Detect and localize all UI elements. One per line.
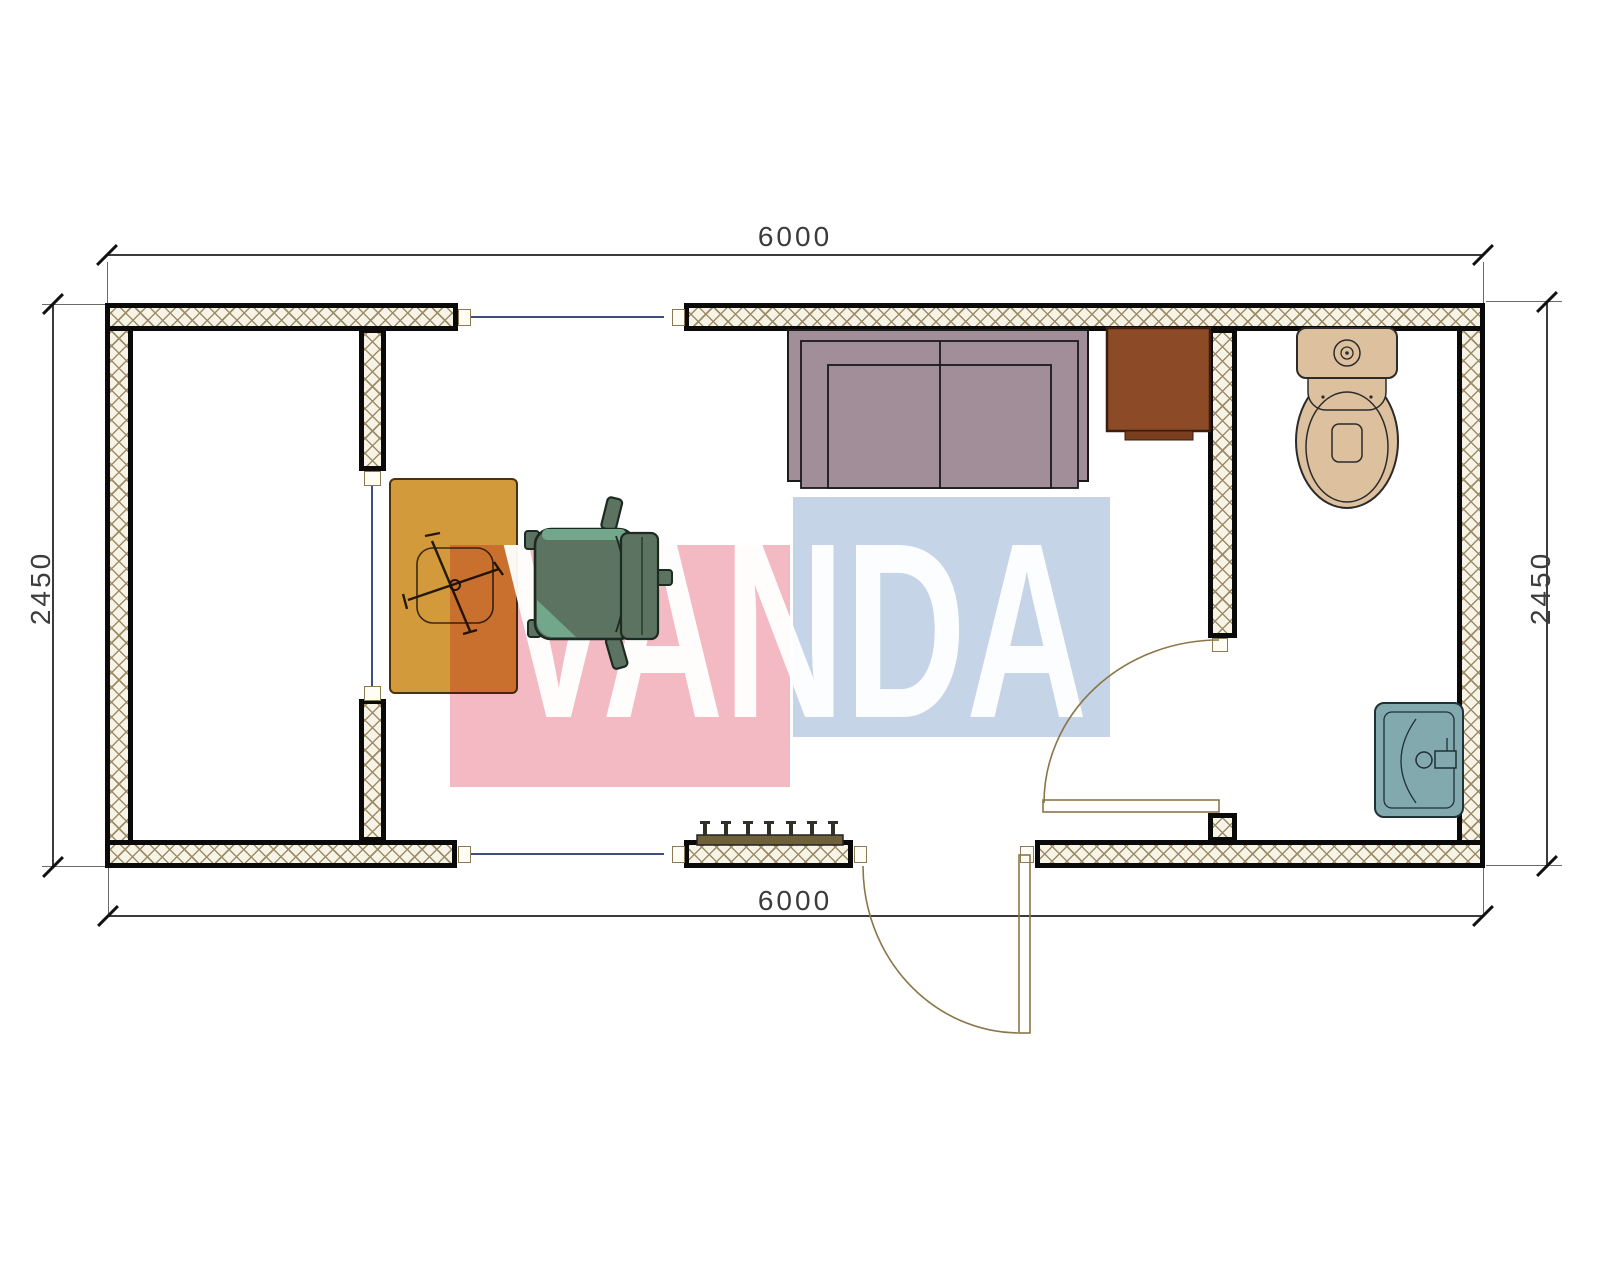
wall-opening-jamb (854, 846, 867, 863)
wall-partition-left-lower (359, 699, 386, 842)
wall-opening-jamb (364, 686, 381, 701)
wall-exterior-right (1457, 303, 1485, 868)
wall-exterior-bottom-right (1035, 840, 1485, 868)
wall-opening-jamb (458, 846, 471, 863)
wall-opening-jamb (672, 846, 685, 863)
extension-line (1483, 868, 1484, 916)
cabinet (1107, 328, 1210, 440)
floor-plan: 6000 6000 2450 2450 (0, 0, 1600, 1280)
wall-exterior-bottom-mid (684, 840, 853, 868)
extension-line (107, 262, 108, 303)
extension-line (1486, 865, 1562, 866)
wall-exterior-bottom-left (105, 840, 457, 868)
extension-line (1483, 262, 1484, 303)
entrance-door (863, 855, 1030, 1033)
extension-line (108, 868, 109, 916)
wall-opening-jamb (1212, 638, 1228, 652)
wall-partition-bathroom (1208, 328, 1237, 638)
watermark-pink-block (450, 545, 790, 787)
dim-label-bottom: 6000 (758, 885, 832, 917)
extension-line (1486, 301, 1562, 302)
dim-label-left: 2450 (25, 551, 57, 625)
watermark-blue-block (793, 497, 1110, 737)
wall-opening-jamb (458, 309, 471, 326)
wall-exterior-left (105, 303, 133, 868)
opening-centerline-top (470, 316, 664, 318)
sink (1375, 703, 1463, 817)
wall-exterior-top-right (684, 303, 1485, 331)
dim-label-top: 6000 (758, 221, 832, 253)
dim-label-right: 2450 (1525, 551, 1557, 625)
wall-opening-jamb (672, 309, 685, 326)
wall-opening-jamb (1020, 846, 1034, 863)
dim-line-top (107, 254, 1483, 256)
wall-exterior-top-left (105, 303, 458, 331)
opening-centerline-partition (371, 484, 373, 686)
toilet (1296, 328, 1398, 508)
opening-centerline-bottom (470, 853, 664, 855)
wall-opening-jamb (364, 471, 381, 486)
wall-stub-bathroom-hinge (1208, 813, 1237, 842)
sofa (788, 330, 1088, 488)
wall-partition-left-upper (359, 328, 386, 471)
